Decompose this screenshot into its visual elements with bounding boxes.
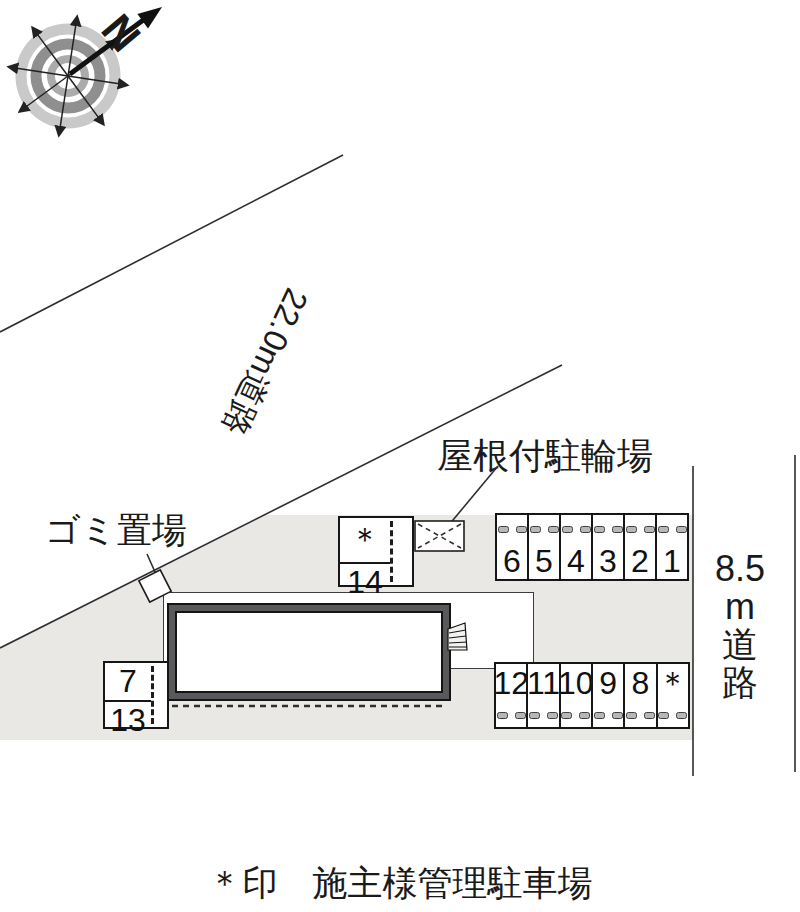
overlay-drawing-layer (0, 0, 800, 912)
site-plan: N 22.0m道路 屋根付駐輪場 ゴミ置場 8.5 m 道 路 6 5 4 3 (0, 0, 800, 912)
trash-area-marker (139, 570, 171, 602)
covered-bicycle-parking-marker (415, 521, 464, 551)
building-entrance-steps (448, 623, 467, 650)
